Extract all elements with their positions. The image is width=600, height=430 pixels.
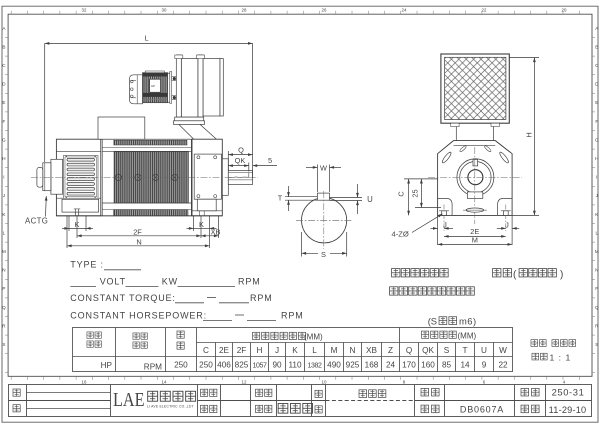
svg-text:U: U — [481, 346, 487, 355]
svg-text:24: 24 — [402, 8, 407, 13]
svg-text:L: L — [596, 230, 599, 235]
svg-text:H: H — [257, 346, 263, 355]
svg-text:M: M — [595, 249, 599, 254]
svg-text:J: J — [596, 193, 598, 198]
svg-text:25: 25 — [411, 189, 420, 197]
svg-text:Q: Q — [238, 146, 244, 155]
svg-text:S: S — [321, 250, 326, 259]
svg-text:HP: HP — [101, 361, 113, 370]
svg-text:DB0607A: DB0607A — [460, 405, 504, 415]
svg-text:M: M — [331, 346, 338, 355]
svg-text:9: 9 — [482, 360, 487, 369]
svg-text:HP: HP — [151, 84, 155, 88]
svg-text:RPM: RPM — [281, 310, 304, 320]
svg-text:S: S — [2, 342, 5, 347]
svg-text:XB: XB — [211, 228, 221, 237]
svg-text:H: H — [525, 132, 534, 137]
svg-text:K: K — [199, 220, 204, 229]
svg-text:1 : 1: 1 : 1 — [550, 353, 572, 363]
svg-text:QK: QK — [422, 346, 434, 355]
svg-text:ACTG: ACTG — [25, 217, 48, 226]
svg-text:11-29-10: 11-29-10 — [549, 405, 587, 415]
svg-text:T: T — [462, 346, 467, 355]
svg-text:J: J — [3, 193, 5, 198]
svg-text:1057: 1057 — [253, 362, 267, 369]
svg-text:QK: QK — [235, 156, 246, 165]
svg-text:160: 160 — [421, 360, 435, 369]
svg-text:CONSTANT HORSEPOWER:: CONSTANT HORSEPOWER: — [70, 310, 207, 320]
svg-text:C: C — [203, 346, 209, 355]
svg-text:Q: Q — [2, 305, 6, 310]
svg-text:L: L — [144, 34, 148, 43]
svg-text:I: I — [596, 175, 597, 180]
svg-text:G: G — [595, 137, 599, 142]
svg-text:32: 32 — [82, 8, 87, 13]
svg-text:N: N — [136, 237, 141, 246]
svg-text:Q: Q — [595, 305, 599, 310]
svg-text:28: 28 — [242, 8, 247, 13]
svg-text:168: 168 — [365, 360, 379, 369]
svg-text:N: N — [2, 268, 5, 273]
svg-text:10: 10 — [322, 380, 327, 385]
svg-text:L: L — [3, 230, 6, 235]
svg-text:N: N — [595, 268, 598, 273]
svg-text:): ) — [560, 270, 563, 281]
svg-text:12: 12 — [242, 380, 247, 385]
svg-text:K: K — [292, 346, 298, 355]
svg-text:E: E — [595, 100, 598, 105]
svg-text:(MM): (MM) — [458, 331, 477, 340]
svg-text:RPM: RPM — [144, 362, 162, 371]
svg-text:90: 90 — [272, 360, 282, 369]
svg-text:14: 14 — [460, 360, 470, 369]
svg-text:1382: 1382 — [308, 362, 322, 369]
svg-text:LI AVE ELECTRIC CO.,LDT: LI AVE ELECTRIC CO.,LDT — [147, 405, 194, 409]
svg-text:Q: Q — [406, 346, 412, 355]
svg-text:2F: 2F — [133, 228, 142, 237]
svg-text:F: F — [2, 119, 5, 124]
svg-text:Z: Z — [388, 346, 393, 355]
svg-text:N: N — [350, 346, 356, 355]
svg-text:250: 250 — [174, 360, 188, 369]
svg-text:I: I — [3, 175, 4, 180]
svg-text:B: B — [595, 44, 598, 49]
svg-text:M: M — [472, 236, 478, 245]
svg-text:W: W — [320, 164, 327, 173]
svg-text:C: C — [396, 191, 405, 197]
svg-text:W: W — [499, 346, 507, 355]
svg-text:490: 490 — [327, 360, 341, 369]
svg-text:M: M — [2, 249, 6, 254]
svg-text:P: P — [2, 286, 5, 291]
svg-text:VOLT: VOLT — [100, 277, 126, 287]
svg-text:22: 22 — [482, 8, 487, 13]
svg-text:(S: (S — [428, 316, 437, 327]
svg-text:26: 26 — [322, 8, 327, 13]
svg-text:H: H — [2, 156, 5, 161]
svg-text:250-31: 250-31 — [552, 386, 585, 397]
svg-text:U: U — [367, 195, 373, 204]
svg-text:(MM): (MM) — [304, 333, 323, 342]
svg-text:B: B — [2, 44, 5, 49]
svg-text:S: S — [444, 346, 450, 355]
svg-text:T: T — [278, 193, 283, 202]
svg-text:5: 5 — [268, 156, 272, 165]
svg-text:LAE: LAE — [113, 389, 145, 411]
svg-text:F: F — [595, 119, 598, 124]
svg-text:2F: 2F — [237, 346, 247, 355]
svg-text:22: 22 — [498, 360, 508, 369]
svg-text:H: H — [595, 156, 598, 161]
svg-text:CONSTANT TORQUE:: CONSTANT TORQUE: — [70, 293, 175, 303]
svg-text:2E: 2E — [219, 346, 230, 355]
svg-text:825: 825 — [235, 360, 249, 369]
svg-text:TYPE :: TYPE : — [70, 259, 104, 269]
svg-text:L: L — [312, 346, 317, 355]
svg-text:J: J — [443, 220, 447, 229]
svg-text:J: J — [275, 346, 279, 355]
svg-text:S: S — [595, 342, 598, 347]
svg-text:RPM: RPM — [238, 277, 261, 287]
svg-text:16: 16 — [82, 380, 87, 385]
svg-text:P: P — [595, 286, 598, 291]
svg-text:4-ZØ: 4-ZØ — [392, 230, 409, 239]
svg-text:J: J — [505, 220, 509, 229]
svg-text:110: 110 — [288, 360, 301, 369]
svg-text:250: 250 — [199, 360, 213, 369]
svg-text:406: 406 — [217, 360, 231, 369]
svg-text:30: 30 — [162, 8, 167, 13]
svg-text:85: 85 — [442, 360, 452, 369]
svg-text:XB: XB — [366, 346, 377, 355]
svg-text:925: 925 — [346, 360, 360, 369]
svg-text:24: 24 — [386, 360, 396, 369]
svg-text:20: 20 — [562, 8, 567, 13]
svg-text:E: E — [2, 100, 5, 105]
svg-text:170: 170 — [402, 360, 416, 369]
svg-text:m6): m6) — [459, 316, 477, 327]
svg-text:14: 14 — [162, 380, 167, 385]
svg-text:RPM: RPM — [250, 293, 273, 303]
svg-text:KW: KW — [162, 277, 178, 287]
svg-text:G: G — [2, 137, 6, 142]
